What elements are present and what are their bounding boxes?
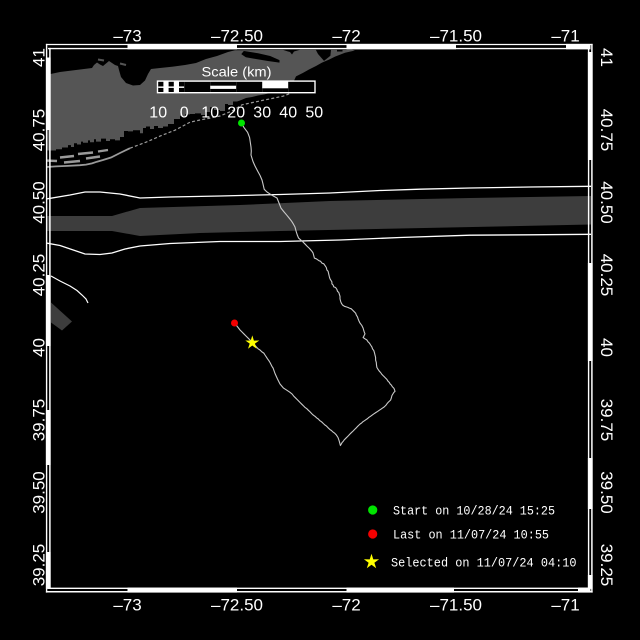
svg-text:–72: –72 [332, 27, 360, 46]
svg-text:–71: –71 [551, 27, 579, 46]
svg-text:41: 41 [29, 48, 48, 67]
svg-text:39.25: 39.25 [29, 544, 48, 587]
svg-text:–71.50: –71.50 [430, 596, 482, 615]
svg-text:10: 10 [149, 105, 167, 122]
svg-text:40.50: 40.50 [597, 181, 616, 224]
svg-text:Selected on 11/07/24 04:10: Selected on 11/07/24 04:10 [391, 556, 577, 570]
svg-text:40.75: 40.75 [29, 109, 48, 152]
svg-text:–73: –73 [113, 27, 141, 46]
svg-text:30: 30 [253, 105, 271, 122]
svg-text:39.25: 39.25 [597, 544, 616, 587]
svg-text:–72: –72 [332, 596, 360, 615]
svg-text:39.50: 39.50 [597, 471, 616, 514]
svg-text:39.50: 39.50 [29, 471, 48, 514]
svg-text:–73: –73 [113, 596, 141, 615]
svg-text:39.75: 39.75 [29, 399, 48, 442]
svg-text:–71.50: –71.50 [430, 27, 482, 46]
svg-text:40.50: 40.50 [29, 181, 48, 224]
svg-text:Scale (km): Scale (km) [202, 64, 272, 80]
svg-text:40: 40 [279, 105, 297, 122]
svg-text:–72.50: –72.50 [211, 27, 263, 46]
svg-text:40: 40 [597, 338, 616, 357]
svg-text:40: 40 [29, 338, 48, 357]
svg-text:40.75: 40.75 [597, 109, 616, 152]
svg-text:0: 0 [180, 105, 189, 122]
svg-text:40.25: 40.25 [597, 254, 616, 297]
svg-text:41: 41 [597, 48, 616, 67]
svg-text:39.75: 39.75 [597, 399, 616, 442]
svg-text:40.25: 40.25 [29, 254, 48, 297]
svg-text:50: 50 [305, 105, 323, 122]
svg-text:10: 10 [201, 105, 219, 122]
svg-text:Start on 10/28/24 15:25: Start on 10/28/24 15:25 [393, 504, 555, 518]
svg-text:Last on 11/07/24 10:55: Last on 11/07/24 10:55 [393, 528, 549, 542]
svg-text:20: 20 [227, 105, 245, 122]
svg-text:–72.50: –72.50 [211, 596, 263, 615]
svg-text:–71: –71 [551, 596, 579, 615]
